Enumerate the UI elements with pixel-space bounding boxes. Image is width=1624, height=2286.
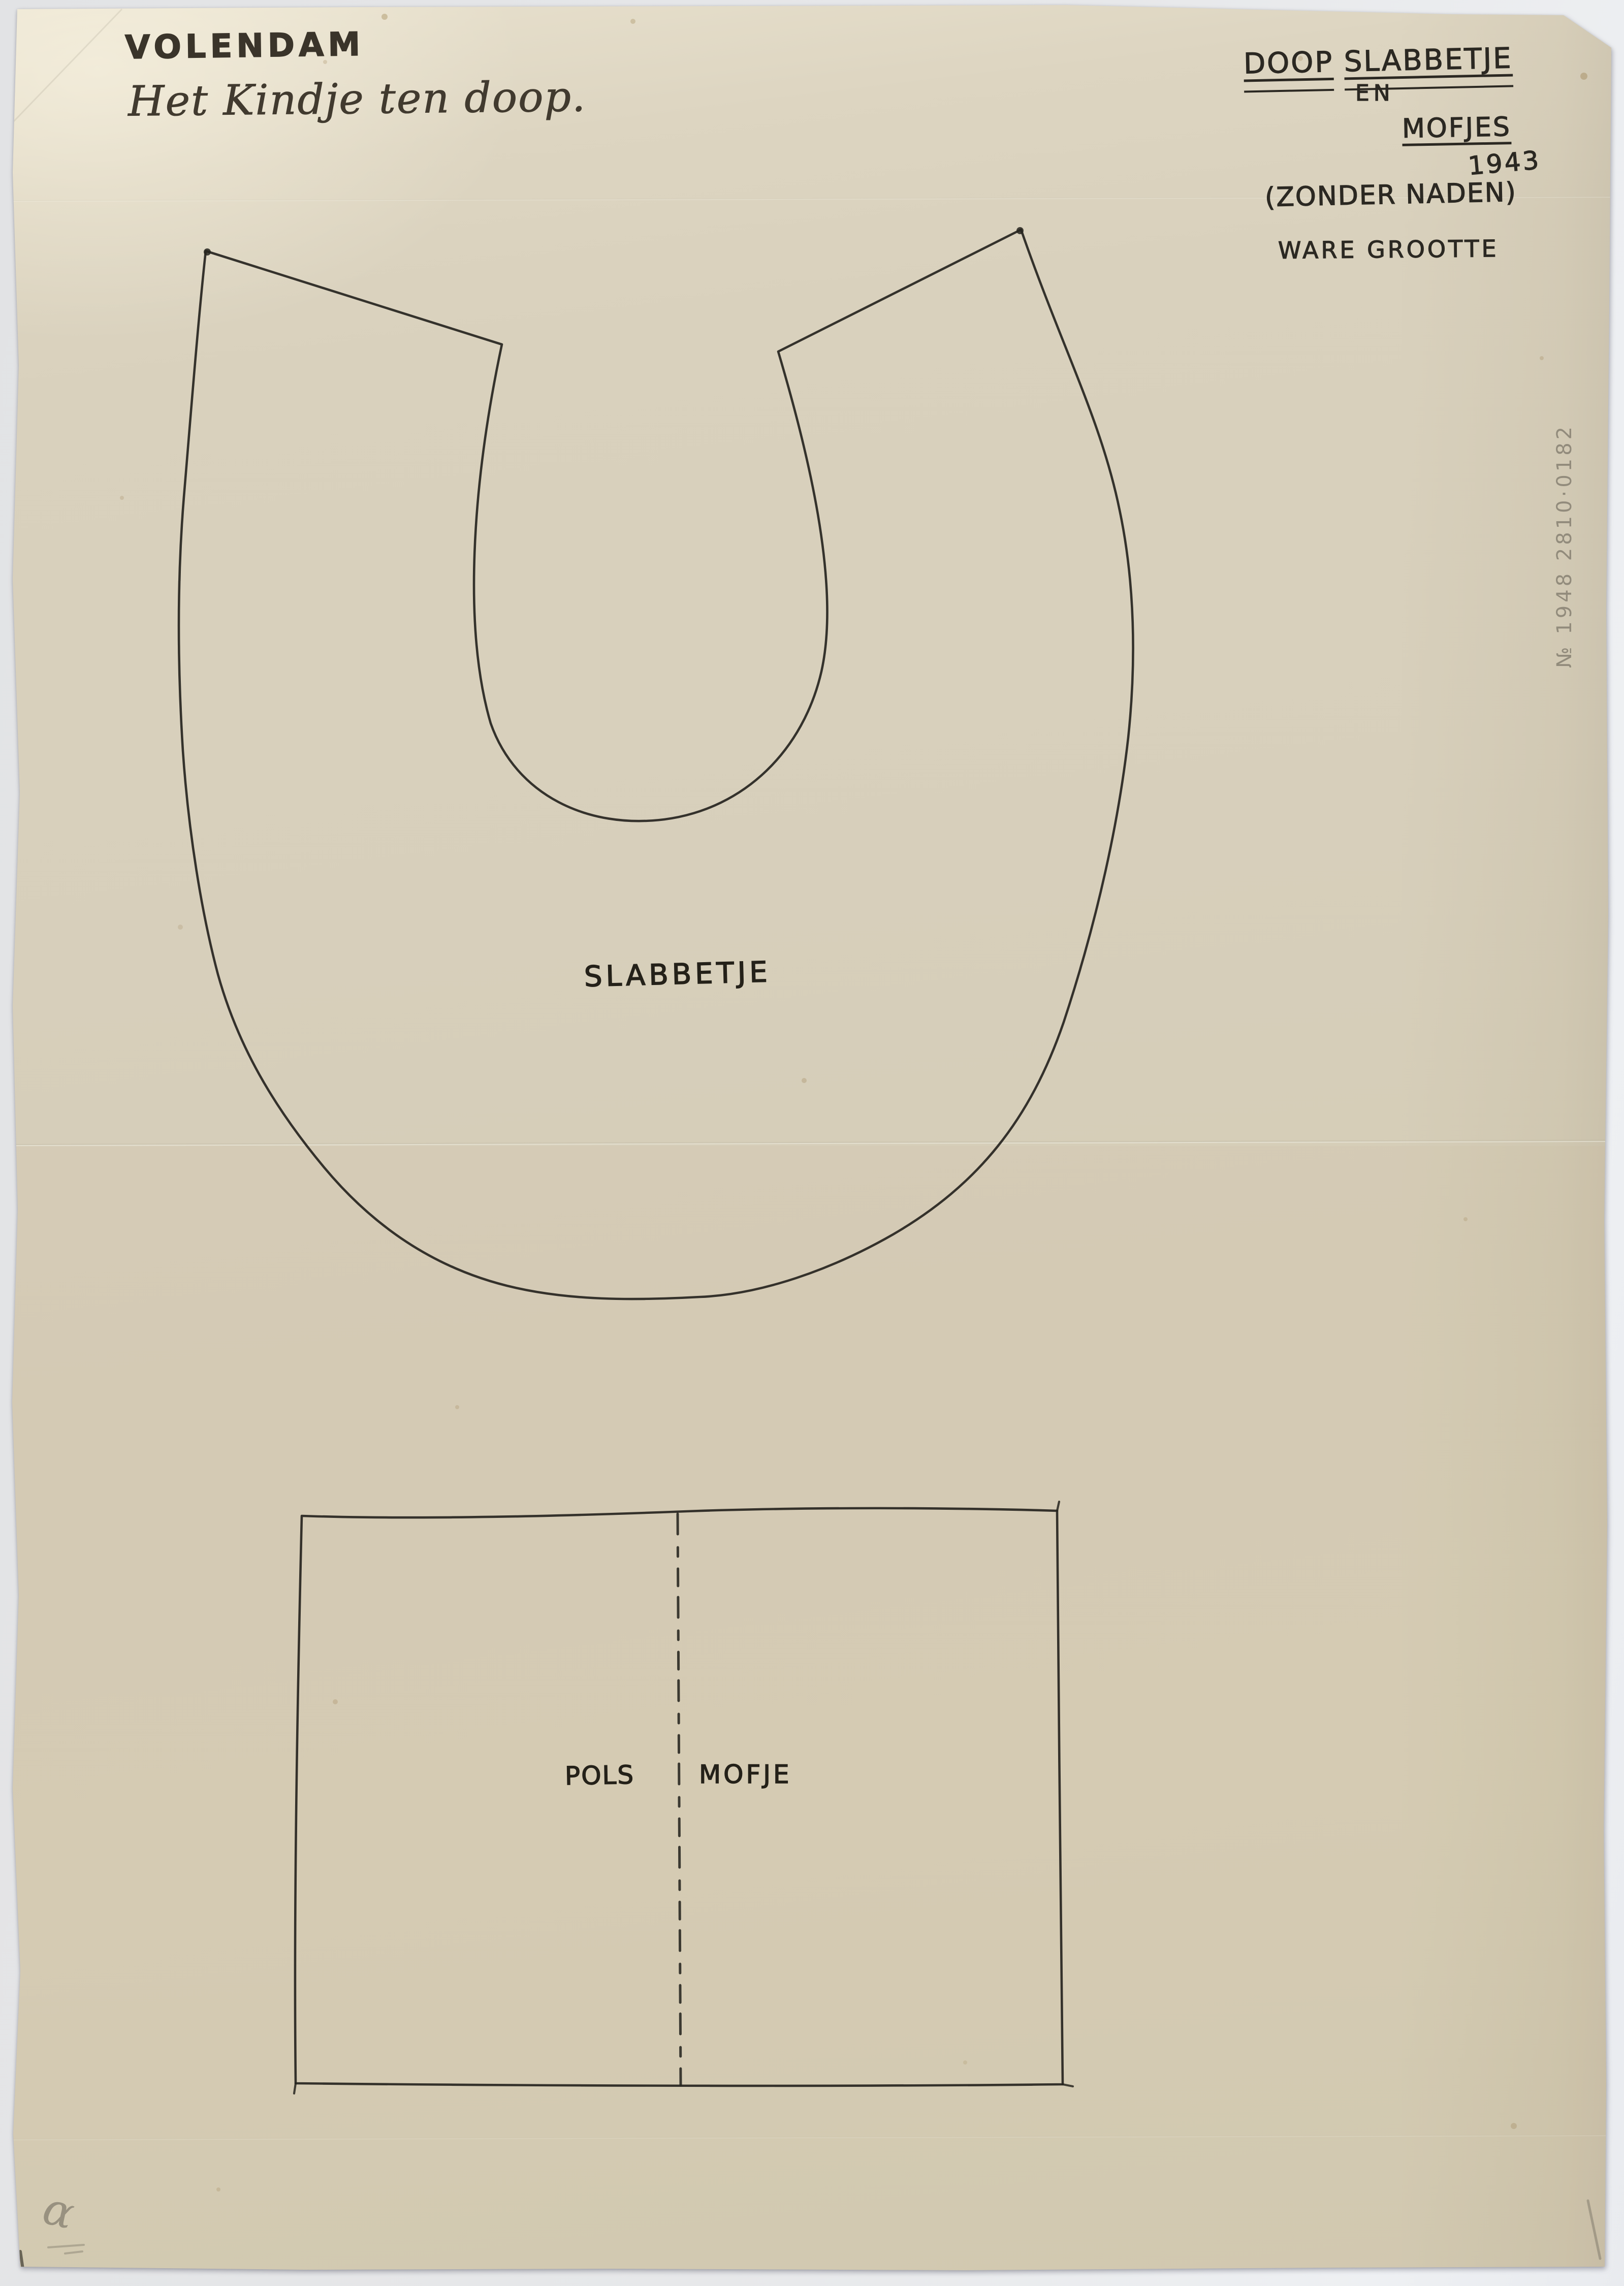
paper-sheet: VOLENDAM Het Kindje ten doop. DOOP SLABB…	[0, 0, 1624, 2286]
bib-corner-ink-blob-left	[204, 248, 211, 256]
corner-crease	[13, 9, 122, 122]
pattern-drawing	[0, 0, 1624, 2286]
pattern-title-line: DOOP SLABBETJE	[1243, 42, 1513, 80]
pencil-scribble-bottom-left	[48, 2245, 84, 2253]
paper-shadow-wrap: VOLENDAM Het Kindje ten doop. DOOP SLABB…	[0, 0, 1624, 2286]
bib-outline	[179, 230, 1133, 1299]
mofjes-underlined: MOFJES	[1402, 112, 1511, 144]
muff-wrist-label: POLS	[565, 1760, 635, 1791]
pattern-title-word-doop: DOOP	[1243, 46, 1334, 93]
note-actual-size: WARE GROOTTE	[1278, 235, 1499, 264]
muff-corner-overshoots	[294, 1502, 1073, 2093]
location-title: VOLENDAM	[125, 26, 365, 67]
foxing-spots	[120, 14, 1587, 2192]
location-subtitle: Het Kindje ten doop.	[128, 73, 587, 125]
pencil-stroke-bottom-right	[1588, 2201, 1600, 2259]
muff-piece-label: MOFJE	[699, 1760, 792, 1789]
pencil-inventory-number: № 1948 2810·0182	[1553, 475, 1581, 668]
pencil-edge-tick	[20, 2251, 23, 2269]
pattern-title-word-mofjes: MOFJES	[1402, 112, 1511, 144]
pattern-year: 1943	[1467, 145, 1542, 181]
bib-corner-ink-blob-right	[1016, 227, 1024, 234]
muff-fold-dashed-line	[678, 1514, 681, 2085]
bib-piece-label: SLABBETJE	[584, 956, 771, 994]
pattern-title-conjunction: EN	[1355, 80, 1394, 106]
scanned-pattern-sheet: VOLENDAM Het Kindje ten doop. DOOP SLABB…	[0, 0, 1624, 2286]
note-without-seams: (ZONDER NADEN)	[1264, 177, 1517, 213]
